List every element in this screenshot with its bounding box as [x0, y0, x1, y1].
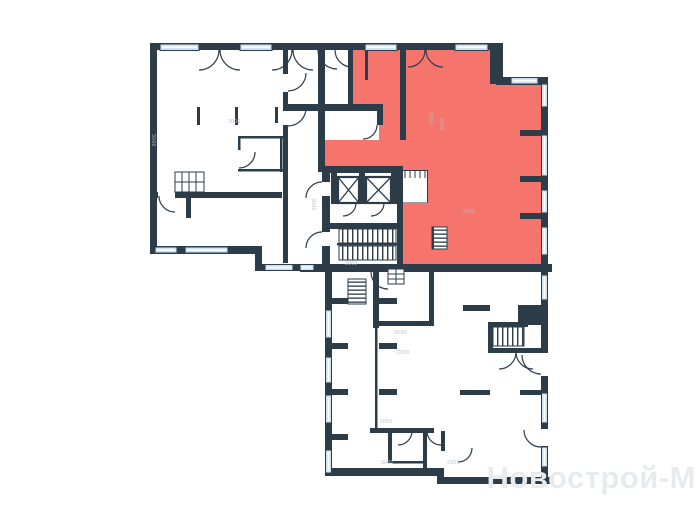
floor-plan-viewer: 3000300030002000300030003000300020003000… — [0, 0, 700, 525]
watermark: Новострой-М — [487, 460, 697, 496]
apartment-stair-icon — [432, 227, 447, 249]
dimension-label: 3000 — [345, 262, 358, 267]
main-staircase-icon — [337, 229, 397, 260]
lower-stair-icon-right — [493, 327, 524, 346]
wardrobe-icon — [175, 172, 204, 192]
dimension-label: 3000 — [394, 331, 407, 336]
elevator-icon — [366, 177, 391, 203]
dimension-label: 2000 — [438, 118, 443, 131]
dimension-label: 2000 — [397, 351, 410, 356]
fixture-grid-icon — [388, 269, 404, 284]
dimension-label: 3000 — [310, 198, 315, 211]
dimension-label: 3000 — [380, 420, 393, 425]
dimension-label: 2000 — [447, 461, 460, 466]
dimension-label: 3000 — [427, 112, 432, 125]
dimension-label: 3000 — [381, 461, 394, 466]
dimension-label: 3000 — [150, 134, 155, 147]
elevator-icon — [338, 177, 359, 203]
dimension-label: 3000 — [228, 120, 241, 125]
dimension-label: 3000 — [462, 210, 475, 215]
lower-stair-icon-left — [348, 279, 366, 304]
